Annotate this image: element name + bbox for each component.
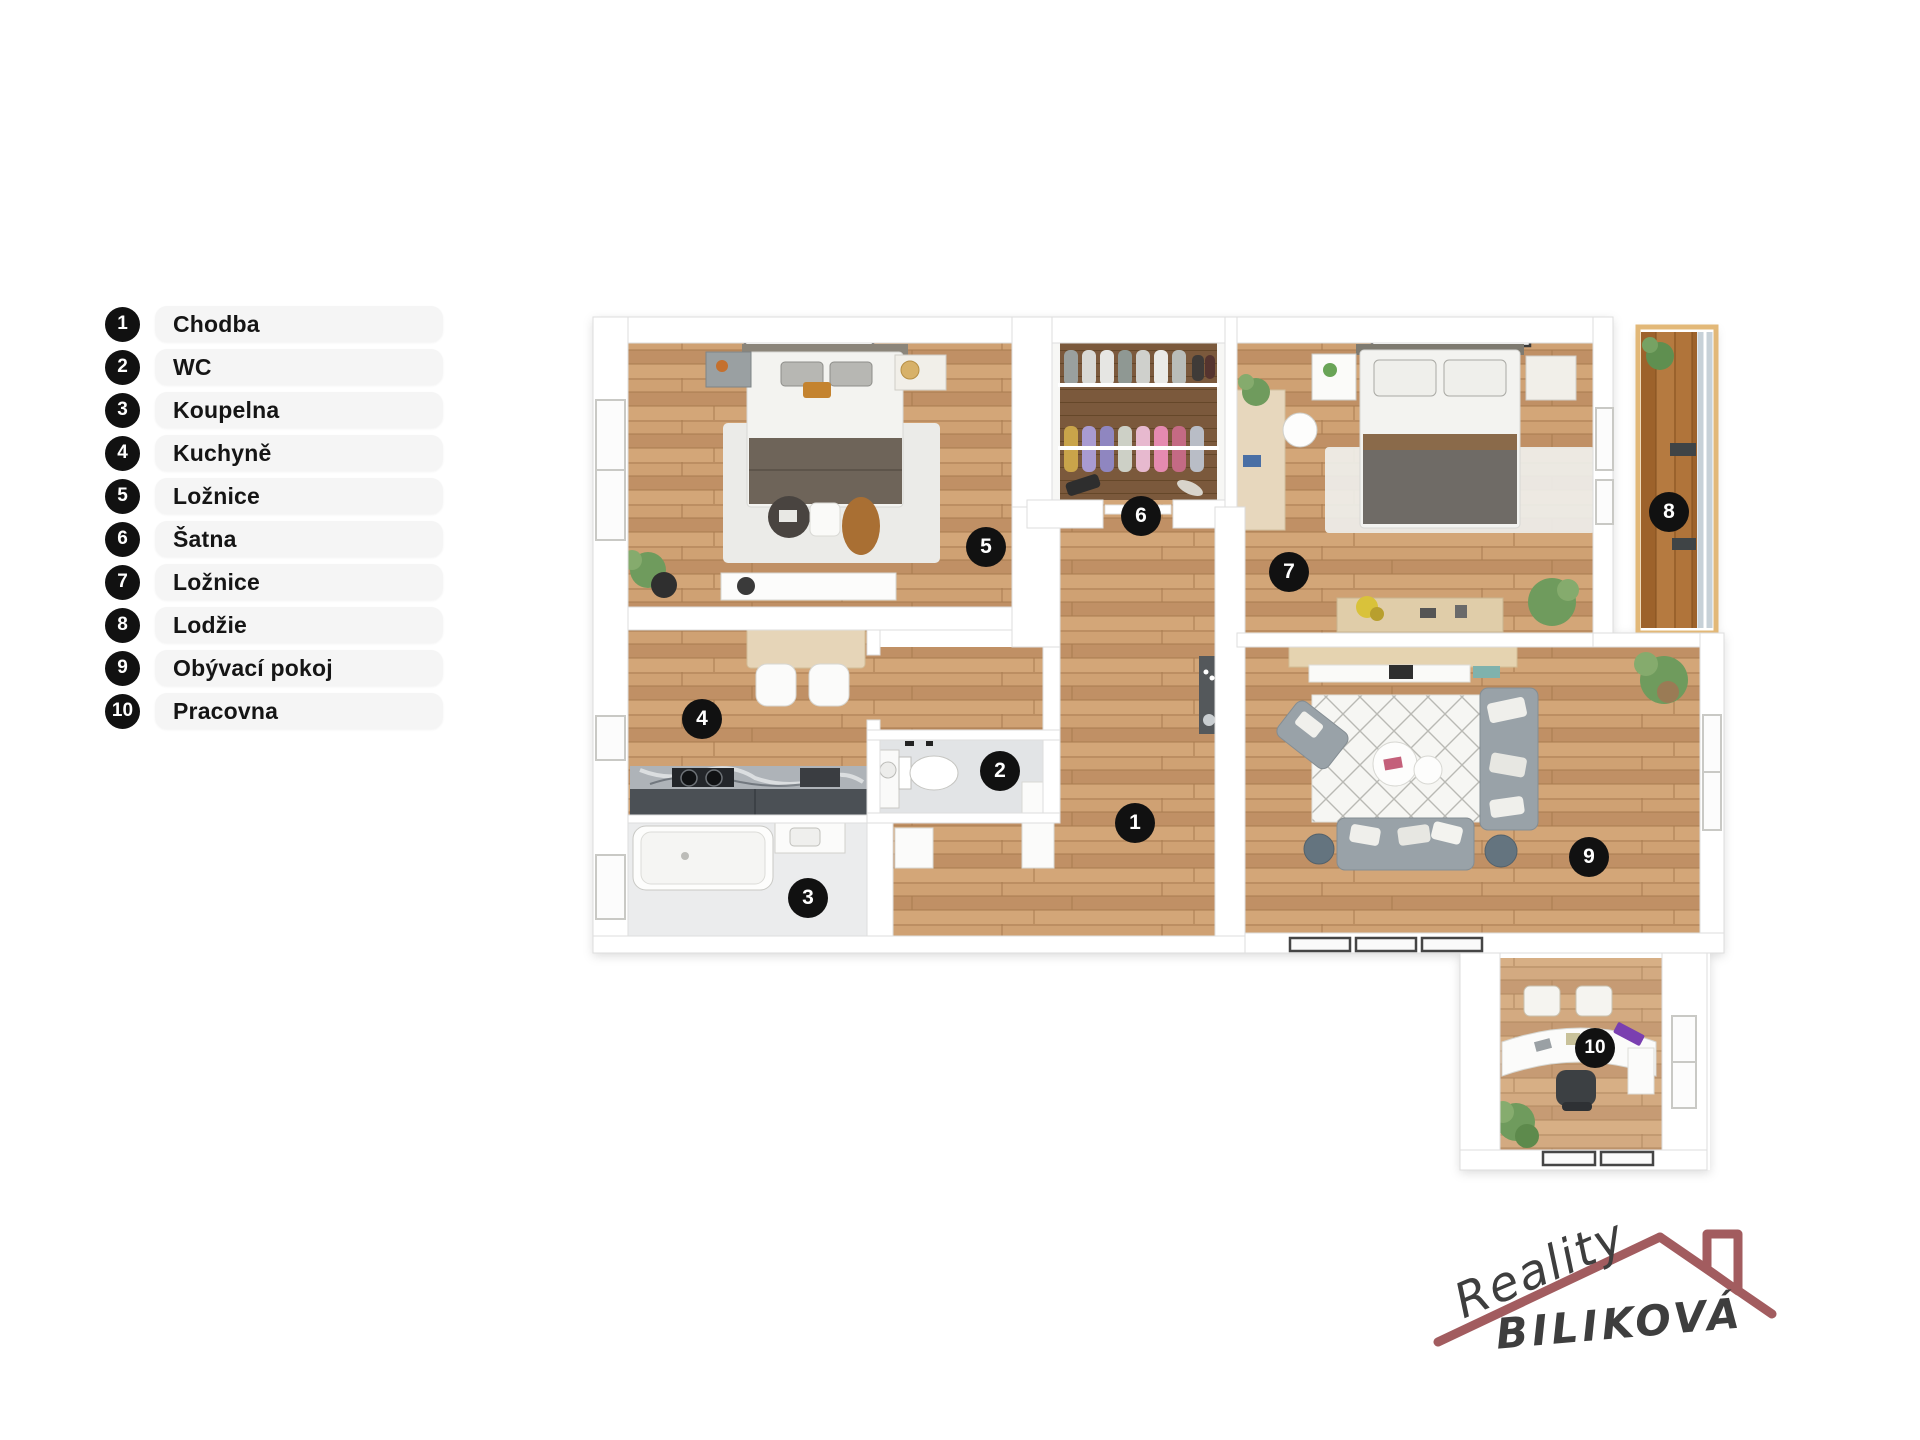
- room-marker-7: 7: [1269, 552, 1309, 592]
- room-marker-5: 5: [966, 527, 1006, 567]
- room-marker-4: 4: [682, 699, 722, 739]
- brand-logo-drawing: Reality BILIKOVÁ: [1420, 1198, 1820, 1398]
- room-marker-8: 8: [1649, 492, 1689, 532]
- page: 1Chodba2WC3Koupelna4Kuchyně5Ložnice6Šatn…: [0, 0, 1920, 1440]
- room-marker-9: 9: [1569, 837, 1609, 877]
- room-marker-1: 1: [1115, 803, 1155, 843]
- room-marker-2: 2: [980, 751, 1020, 791]
- brand-logo: Reality BILIKOVÁ: [1420, 1198, 1820, 1398]
- room-marker-6: 6: [1121, 496, 1161, 536]
- room-marker-3: 3: [788, 878, 828, 918]
- room-marker-10: 10: [1575, 1028, 1615, 1068]
